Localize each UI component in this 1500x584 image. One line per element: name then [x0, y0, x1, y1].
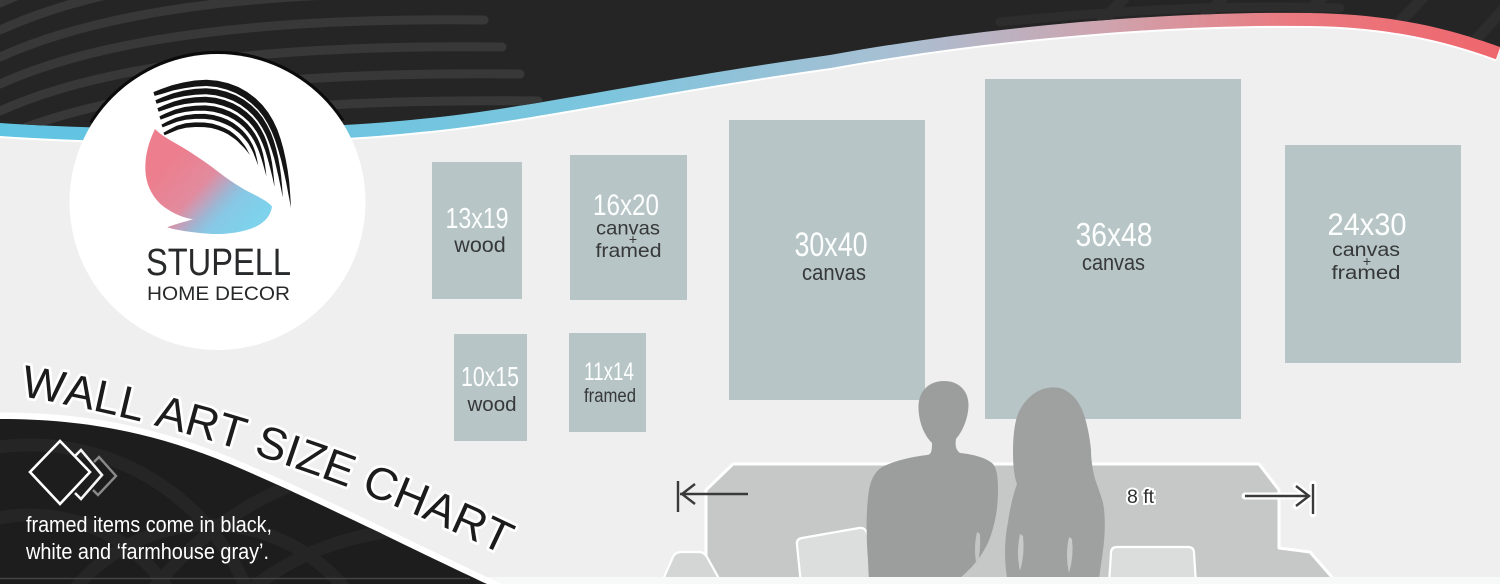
- svg-text:framed items come in black,: framed items come in black,: [26, 512, 272, 537]
- svg-text:13x19: 13x19: [446, 203, 509, 235]
- svg-text:HOME DECOR: HOME DECOR: [147, 284, 290, 305]
- svg-text:36x48: 36x48: [1076, 216, 1153, 253]
- svg-text:30x40: 30x40: [795, 226, 868, 264]
- svg-text:framed: framed: [584, 386, 636, 407]
- svg-text:8 ft: 8 ft: [1127, 486, 1155, 508]
- svg-text:10x15: 10x15: [461, 361, 519, 392]
- svg-text:24x30: 24x30: [1328, 206, 1407, 242]
- svg-text:wood: wood: [453, 233, 505, 257]
- svg-text:canvas: canvas: [1082, 250, 1145, 275]
- svg-text:canvas: canvas: [802, 260, 866, 285]
- svg-text:framed: framed: [1332, 263, 1401, 284]
- svg-text:11x14: 11x14: [584, 358, 634, 386]
- svg-text:framed: framed: [596, 240, 662, 262]
- svg-text:wood: wood: [466, 393, 516, 416]
- svg-text:white and ‘farmhouse gray’.: white and ‘farmhouse gray’.: [25, 539, 269, 564]
- svg-text:STUPELL: STUPELL: [146, 242, 291, 284]
